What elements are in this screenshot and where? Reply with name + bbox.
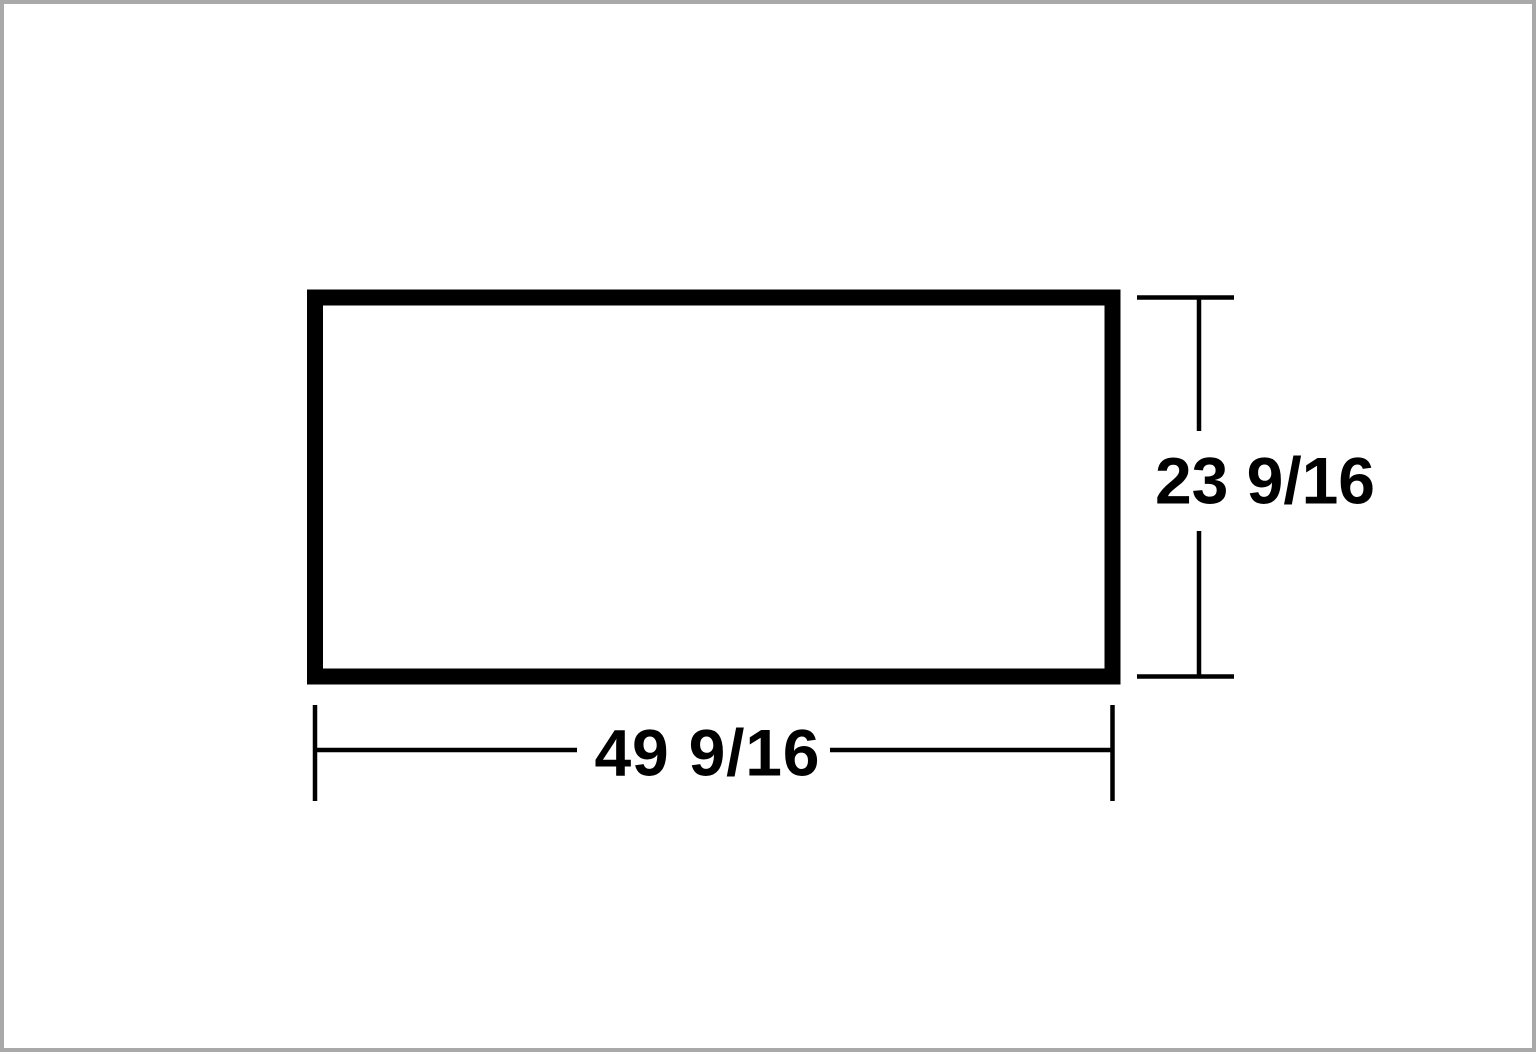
svg-text:23 9/16: 23 9/16 — [1155, 444, 1375, 518]
svg-text:49 9/16: 49 9/16 — [595, 716, 820, 790]
